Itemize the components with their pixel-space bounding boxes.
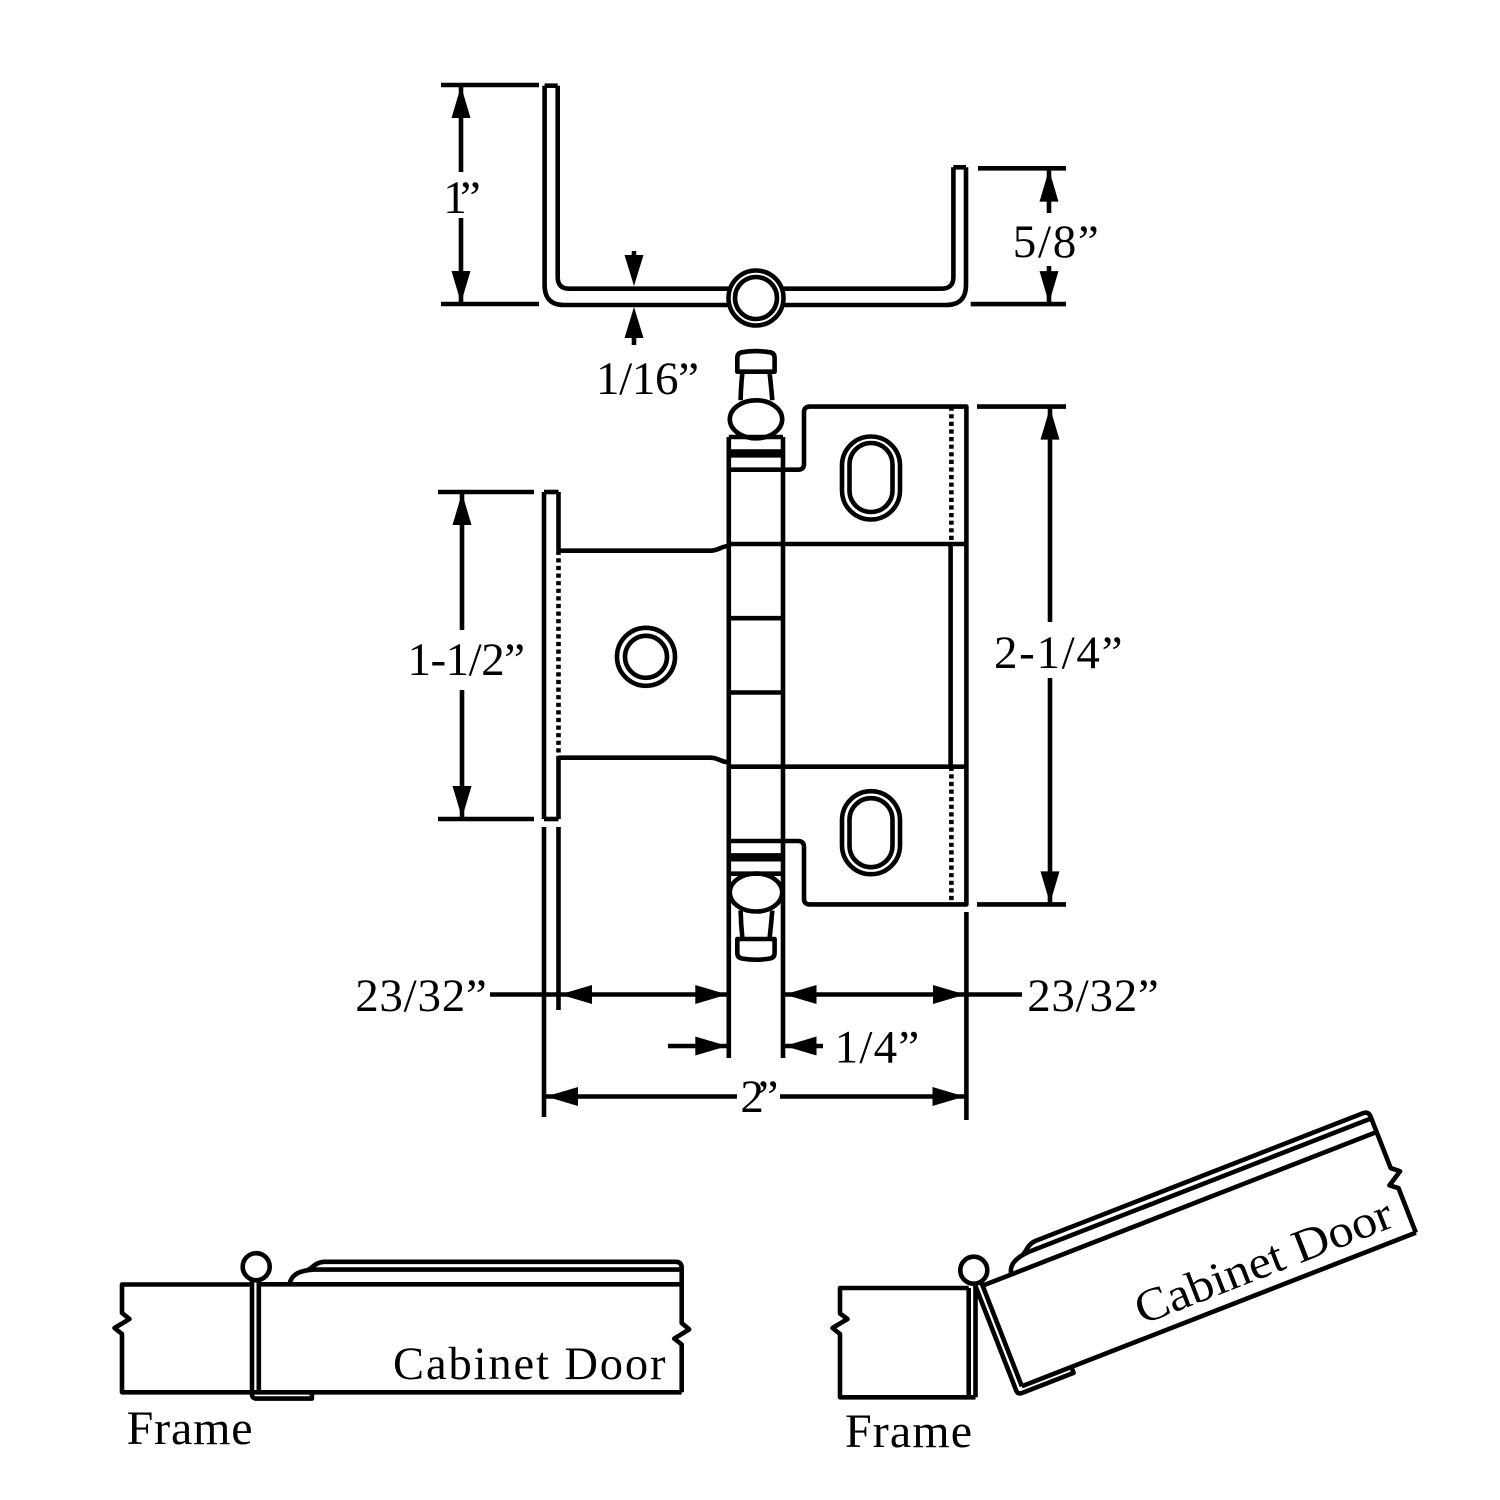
svg-text:Frame: Frame xyxy=(127,1402,253,1455)
svg-text:Frame: Frame xyxy=(845,1405,972,1458)
svg-text:1”: 1” xyxy=(443,172,481,224)
svg-text:2-1/4”: 2-1/4” xyxy=(994,627,1123,679)
svg-text:1/16”: 1/16” xyxy=(596,353,699,405)
svg-text:2”: 2” xyxy=(740,1071,778,1123)
svg-text:23/32”: 23/32” xyxy=(355,970,487,1022)
svg-text:5/8”: 5/8” xyxy=(1013,216,1099,268)
svg-text:23/32”: 23/32” xyxy=(1027,970,1159,1022)
svg-text:1/4”: 1/4” xyxy=(835,1022,920,1074)
svg-text:1-1/2”: 1-1/2” xyxy=(408,634,526,686)
svg-text:Cabinet Door: Cabinet Door xyxy=(393,1339,666,1390)
